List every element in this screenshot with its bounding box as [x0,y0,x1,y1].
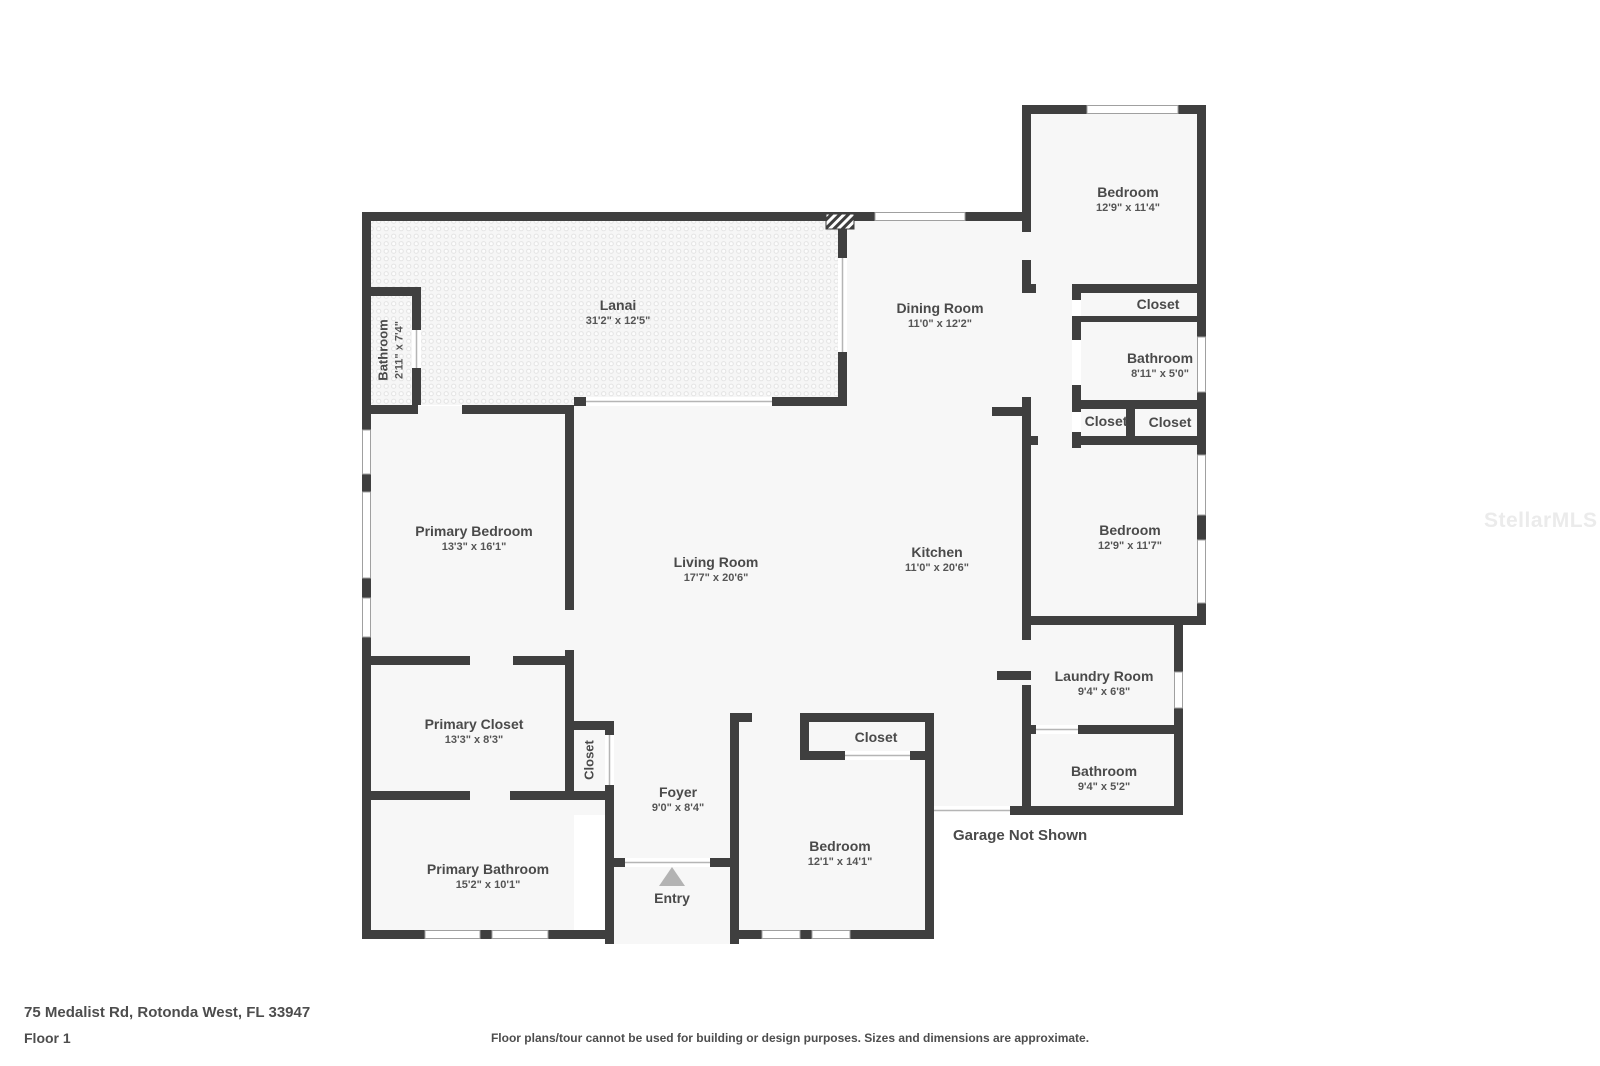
room-label-lanai: Lanai 31'2" x 12'5" [586,296,651,328]
room-name: Closet [582,740,599,780]
floorplan-drawing [0,0,1600,1066]
room-name: Closet [855,728,898,746]
room-dims: 11'0" x 20'6" [905,561,969,575]
room-name: Bedroom [1096,183,1160,201]
room-name: Bedroom [808,837,873,855]
room-dims: 31'2" x 12'5" [586,314,651,328]
room-dims: 8'11" x 5'0" [1127,367,1193,381]
room-label-foyer: Foyer 9'0" x 8'4" [652,783,704,815]
room-label-bedroom-bottom: Bedroom 12'1" x 14'1" [808,837,873,869]
address-text: 75 Medalist Rd, Rotonda West, FL 33947 [24,1004,310,1021]
room-label-laundry-room: Laundry Room 9'4" x 6'8" [1055,667,1154,699]
room-dims: 13'3" x 8'3" [425,733,524,747]
room-label-primary-bathroom: Primary Bathroom 15'2" x 10'1" [427,860,549,892]
room-name: Primary Bedroom [415,522,532,540]
room-label-primary-closet: Primary Closet 13'3" x 8'3" [425,715,524,747]
room-label-closet-1: Closet [1137,295,1180,313]
room-dims: 17'7" x 20'6" [674,571,759,585]
room-label-lanai-bathroom: Bathroom 2'11" x 7'4" [375,319,406,380]
room-label-bedroom-right: Bedroom 12'9" x 11'7" [1098,521,1162,553]
room-dims: 12'1" x 14'1" [808,855,873,869]
room-label-closet-bedroom: Closet [855,728,898,746]
room-label-bathroom-hall: Bathroom 9'4" x 5'2" [1071,762,1137,794]
room-label-bathroom-ensuite: Bathroom 8'11" x 5'0" [1127,349,1193,381]
room-label-closet-3: Closet [1149,413,1192,431]
room-name: Lanai [586,296,651,314]
room-name: Primary Closet [425,715,524,733]
floor-label: Floor 1 [24,1030,71,1046]
room-dims: 13'3" x 16'1" [415,540,532,554]
room-label-bedroom-top: Bedroom 12'9" x 11'4" [1096,183,1160,215]
room-dims: 9'4" x 5'2" [1071,780,1137,794]
room-name: Bathroom [1127,349,1193,367]
room-name: Dining Room [896,299,983,317]
floorplan-page: Lanai 31'2" x 12'5" Bathroom 2'11" x 7'4… [0,0,1600,1066]
room-label-primary-bedroom: Primary Bedroom 13'3" x 16'1" [415,522,532,554]
room-name: Living Room [674,553,759,571]
room-dims: 12'9" x 11'4" [1096,201,1160,215]
room-label-closet-nook: Closet [582,740,599,780]
hatch-marker [826,214,854,229]
room-label-closet-2: Closet [1085,412,1128,430]
room-dims: 2'11" x 7'4" [392,319,406,380]
room-label-kitchen: Kitchen 11'0" x 20'6" [905,543,969,575]
room-name: Bathroom [1071,762,1137,780]
entry-label: Entry [654,889,690,907]
room-dims: 9'4" x 6'8" [1055,685,1154,699]
room-name: Laundry Room [1055,667,1154,685]
room-dims: 12'9" x 11'7" [1098,539,1162,553]
room-label-living-room: Living Room 17'7" x 20'6" [674,553,759,585]
room-name: Bedroom [1098,521,1162,539]
room-dims: 9'0" x 8'4" [652,801,704,815]
room-name: Foyer [652,783,704,801]
room-name: Closet [1149,413,1192,431]
garage-note: Garage Not Shown [953,827,1087,844]
disclaimer-text: Floor plans/tour cannot be used for buil… [491,1031,1089,1045]
stellar-mls-watermark: StellarMLS [1484,509,1598,533]
room-label-dining-room: Dining Room 11'0" x 12'2" [896,299,983,331]
room-name: Bathroom [375,319,392,380]
room-name: Closet [1137,295,1180,313]
room-name: Kitchen [905,543,969,561]
room-name: Closet [1085,412,1128,430]
room-name: Primary Bathroom [427,860,549,878]
room-dims: 15'2" x 10'1" [427,878,549,892]
room-dims: 11'0" x 12'2" [896,317,983,331]
